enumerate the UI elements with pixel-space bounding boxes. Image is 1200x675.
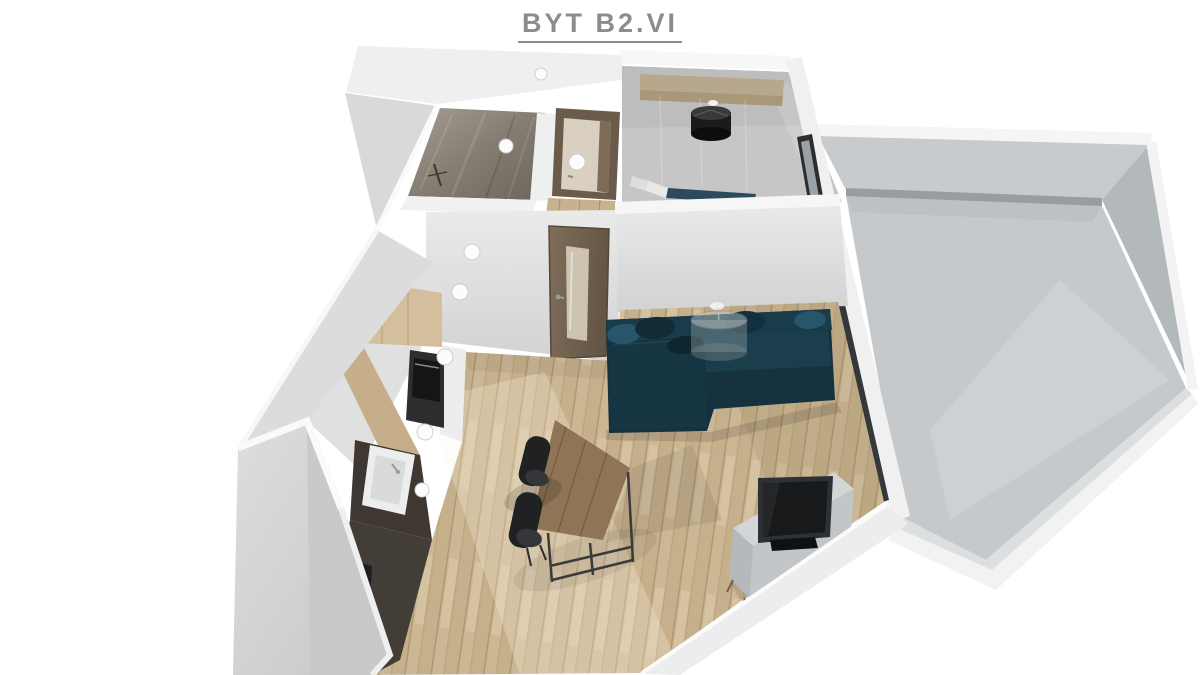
sphere-light — [452, 284, 468, 300]
sphere-light — [415, 483, 429, 497]
door-handle — [568, 176, 573, 177]
top-wall-band — [346, 46, 622, 104]
pendant-shade-top — [691, 311, 747, 329]
floor-plan-page: BYT B2.VI — [0, 0, 1200, 675]
sphere-light — [437, 349, 453, 365]
bedroom-pendant-top — [691, 106, 731, 120]
bedroom-front-wall-face — [617, 202, 848, 312]
sphere-light — [417, 424, 433, 440]
pendant-cap — [710, 302, 724, 310]
sphere-light — [569, 154, 585, 170]
sphere-light — [464, 244, 480, 260]
sphere-light — [499, 139, 513, 153]
sphere-light — [535, 68, 547, 80]
bedroom-pendant-bottom — [691, 127, 731, 141]
apartment-3d-render — [0, 0, 1200, 675]
pendant-ceiling-cap — [708, 100, 718, 106]
pendant-shade-bottom — [691, 343, 747, 361]
bedroom-front-wall — [615, 194, 848, 312]
door-handle — [558, 297, 564, 298]
